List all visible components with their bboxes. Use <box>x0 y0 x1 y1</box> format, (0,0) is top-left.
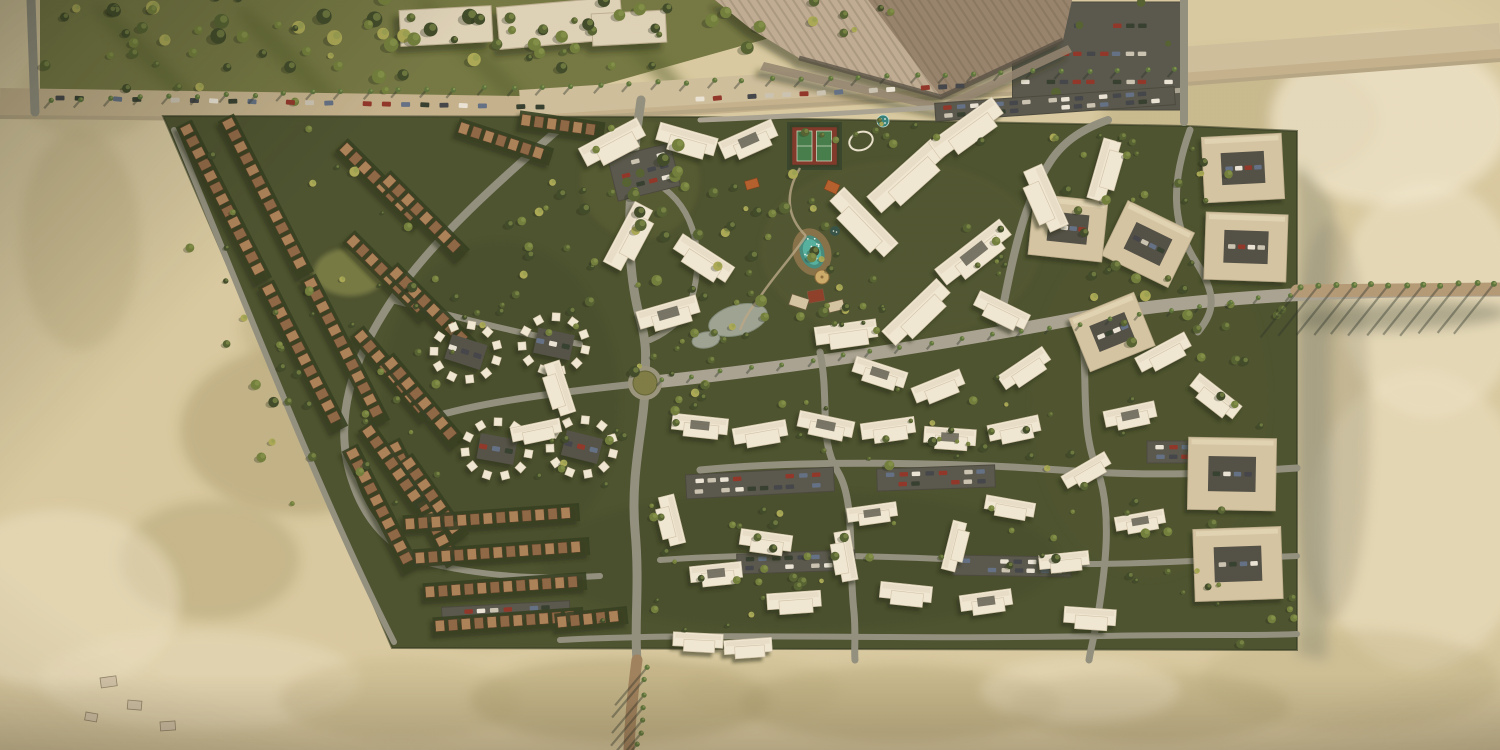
palm-highlight <box>658 80 660 82</box>
tree-highlight <box>996 260 998 262</box>
palm-highlight <box>781 363 783 365</box>
palm-highlight <box>992 332 994 334</box>
car <box>228 99 237 104</box>
tree-highlight <box>464 315 467 318</box>
car <box>812 483 821 488</box>
tree-highlight <box>654 24 659 29</box>
palm-highlight <box>1423 283 1426 286</box>
tree-highlight <box>595 147 599 151</box>
tree-highlight <box>413 34 420 41</box>
townhouse <box>477 582 487 594</box>
tree-highlight <box>281 364 285 368</box>
car <box>1156 455 1165 459</box>
tree-highlight <box>1115 261 1120 266</box>
tree-highlight <box>292 502 294 504</box>
tree-highlight <box>199 84 203 88</box>
tree-highlight <box>1122 432 1125 435</box>
car <box>925 471 934 476</box>
tree-highlight <box>436 472 439 475</box>
car <box>951 480 960 485</box>
tree-highlight <box>772 210 776 214</box>
car <box>695 489 704 494</box>
car <box>707 478 716 483</box>
tree-highlight <box>653 354 656 357</box>
tree-highlight <box>782 401 786 405</box>
palm-highlight <box>453 88 455 90</box>
palm-highlight <box>1354 283 1357 286</box>
tree-highlight <box>455 294 459 298</box>
tree-highlight <box>1240 640 1244 644</box>
tree-highlight <box>417 349 421 353</box>
car <box>760 486 769 491</box>
car <box>1048 98 1057 103</box>
car <box>1223 472 1231 477</box>
tree-highlight <box>713 189 718 194</box>
car <box>811 555 820 560</box>
shack <box>85 712 98 722</box>
car <box>1254 165 1262 170</box>
tree-highlight <box>880 6 883 9</box>
tree-highlight <box>799 433 802 436</box>
sand-patch <box>680 660 840 720</box>
tree-highlight <box>1228 171 1232 175</box>
shack <box>127 700 142 710</box>
tree-highlight <box>275 310 278 313</box>
palm-highlight <box>1171 309 1173 311</box>
tree-highlight <box>821 579 823 581</box>
townhouse <box>493 547 503 559</box>
townhouse <box>529 579 539 591</box>
tree-highlight <box>941 555 944 558</box>
tree-highlight <box>879 118 881 120</box>
tree-highlight <box>308 126 311 129</box>
car <box>459 103 468 108</box>
tree-highlight <box>671 372 674 375</box>
tree-highlight <box>575 324 578 327</box>
car <box>1235 166 1243 171</box>
tree-highlight <box>1144 529 1149 534</box>
roof-equipment <box>707 568 726 579</box>
block-wing <box>735 645 766 659</box>
car <box>324 100 333 105</box>
street <box>31 0 35 112</box>
tree-highlight <box>521 218 525 222</box>
tree-highlight <box>1092 272 1097 277</box>
tree-highlight <box>862 303 865 306</box>
palm-highlight <box>629 82 631 84</box>
tree-highlight <box>863 321 865 323</box>
tree-highlight <box>478 15 484 21</box>
tree-highlight <box>109 52 113 56</box>
tree-highlight <box>583 188 586 191</box>
tree-highlight <box>694 329 698 333</box>
tree-highlight <box>732 522 735 525</box>
tree-highlight <box>897 388 899 390</box>
tree-highlight <box>977 263 980 266</box>
tree-highlight <box>1135 579 1138 582</box>
townhouse <box>519 545 529 557</box>
car <box>977 479 986 484</box>
tree-highlight <box>661 207 666 212</box>
fountain-jet <box>884 118 886 120</box>
tree-highlight <box>523 271 527 275</box>
tree-highlight <box>750 291 753 294</box>
tree-highlight <box>353 168 358 173</box>
tree-highlight <box>533 39 540 46</box>
tree-highlight <box>1127 511 1130 514</box>
car <box>1257 245 1265 250</box>
tree-highlight <box>111 6 116 11</box>
car <box>478 104 487 109</box>
tree-highlight <box>957 440 959 442</box>
car <box>1021 80 1030 84</box>
tree-highlight <box>745 333 748 336</box>
tree-highlight <box>968 442 970 444</box>
tree-highlight <box>762 507 766 511</box>
tree-highlight <box>1050 412 1052 414</box>
tree-highlight <box>255 381 260 386</box>
tree-highlight <box>1167 569 1170 572</box>
car <box>1009 100 1018 105</box>
townhouse <box>570 614 580 626</box>
tree-highlight <box>801 578 806 583</box>
townhouse <box>609 610 619 622</box>
car <box>957 112 966 117</box>
tree-highlight <box>1000 226 1003 229</box>
tree-highlight <box>800 313 804 317</box>
townhouse <box>532 544 542 556</box>
tree-highlight <box>885 436 889 440</box>
tree-highlight <box>336 165 339 168</box>
tree-highlight <box>843 11 847 15</box>
tree-highlight <box>633 190 639 196</box>
tree-highlight <box>845 304 849 308</box>
canopy-dot <box>833 230 835 232</box>
tree-highlight <box>337 62 342 67</box>
tree-highlight <box>836 252 839 255</box>
tree-highlight <box>1144 192 1148 196</box>
car <box>1010 108 1019 113</box>
car <box>1244 165 1252 170</box>
tree-highlight <box>792 574 796 578</box>
car <box>1155 445 1164 449</box>
tree-highlight <box>279 342 282 345</box>
car <box>964 470 973 475</box>
tree-highlight <box>538 474 541 477</box>
palm-highlight <box>484 85 486 87</box>
townhouse <box>487 616 497 628</box>
tree-highlight <box>784 203 790 209</box>
car <box>944 113 953 118</box>
tree-highlight <box>991 429 995 433</box>
tree-highlight <box>869 457 871 459</box>
car <box>747 486 756 491</box>
tree-highlight <box>1196 325 1200 329</box>
car <box>1087 103 1096 108</box>
car <box>1126 80 1135 84</box>
tree-highlight <box>697 230 702 235</box>
parking-tree <box>1075 21 1083 29</box>
tree-highlight <box>723 337 726 340</box>
car <box>1022 100 1031 105</box>
tree-highlight <box>589 298 594 303</box>
palm-highlight <box>340 89 342 91</box>
tree-highlight <box>1183 591 1185 593</box>
tree-highlight <box>322 10 330 18</box>
tree-highlight <box>1144 291 1149 296</box>
tree-highlight <box>378 71 385 78</box>
tree-highlight <box>999 255 1003 259</box>
tree-highlight <box>561 32 567 38</box>
tree-highlight <box>1055 555 1060 560</box>
tree-highlight <box>757 534 761 538</box>
tree-highlight <box>664 232 670 238</box>
tree-highlight <box>666 4 671 9</box>
tree-highlight <box>277 22 281 26</box>
tree-highlight <box>792 170 797 175</box>
tree-highlight <box>611 190 615 194</box>
car <box>939 471 948 476</box>
tree-highlight <box>563 49 567 53</box>
tree-highlight <box>876 328 880 332</box>
tree-highlight <box>825 407 827 409</box>
car <box>1213 471 1221 476</box>
tree-highlight <box>308 287 312 291</box>
tree-highlight <box>528 243 532 247</box>
street <box>1297 289 1500 291</box>
palm-highlight <box>1258 296 1260 298</box>
palm-tree <box>1256 295 1261 300</box>
palm-highlight <box>197 95 199 97</box>
tennis-courts <box>787 122 842 170</box>
pool-lounger <box>807 238 809 240</box>
tree-highlight <box>164 36 170 42</box>
tree-highlight <box>385 87 389 91</box>
tree-highlight <box>1006 403 1008 405</box>
tree-highlight <box>560 190 565 195</box>
car <box>758 556 767 561</box>
tree-highlight <box>311 453 316 458</box>
car <box>516 104 525 109</box>
car <box>912 472 921 477</box>
tree-highlight <box>126 85 130 89</box>
tree-highlight <box>618 10 624 16</box>
tree-highlight <box>910 419 912 421</box>
palm-highlight <box>751 366 753 368</box>
tree-highlight <box>333 32 341 40</box>
fountain-jet <box>884 122 886 124</box>
tree-highlight <box>1105 196 1110 201</box>
car <box>765 93 774 98</box>
tree-highlight <box>834 553 838 557</box>
tree-highlight <box>914 123 917 126</box>
car <box>782 92 791 97</box>
tree-highlight <box>75 5 79 9</box>
tree-highlight <box>1072 510 1074 512</box>
tree-highlight <box>271 439 275 443</box>
car <box>784 556 793 561</box>
tree-highlight <box>502 303 505 306</box>
tree-highlight <box>764 313 768 317</box>
sand-patch <box>20 130 140 350</box>
car <box>886 87 895 92</box>
townhouse <box>516 580 526 592</box>
tree-highlight <box>509 14 514 19</box>
tree-highlight <box>611 125 614 128</box>
tree-highlight <box>1070 450 1074 454</box>
townhouse <box>418 517 428 529</box>
palm-highlight <box>398 88 400 90</box>
car <box>745 566 754 571</box>
tree-highlight <box>608 437 612 441</box>
tree-highlight <box>957 455 959 457</box>
tree-highlight <box>995 238 999 242</box>
block-wing <box>683 639 715 653</box>
tree-highlight <box>1207 584 1210 587</box>
tree-highlight <box>1030 453 1034 457</box>
car <box>535 105 544 110</box>
tree-highlight <box>482 323 485 326</box>
palm-highlight <box>1174 67 1176 69</box>
tree-highlight <box>717 262 722 267</box>
townhouse <box>548 508 558 520</box>
tree-highlight <box>674 407 679 412</box>
palm-highlight <box>661 378 663 380</box>
tree-highlight <box>551 439 553 441</box>
tree-highlight <box>1077 207 1081 211</box>
palm-highlight <box>1139 312 1141 314</box>
car <box>530 606 539 611</box>
tree-highlight <box>44 61 49 66</box>
palm-highlight <box>255 94 257 96</box>
car <box>1075 96 1084 101</box>
tree-highlight <box>807 553 811 557</box>
tree-highlight <box>217 30 225 38</box>
tree-highlight <box>587 19 593 25</box>
tree-highlight <box>745 207 748 210</box>
car <box>817 90 826 96</box>
palm-highlight <box>642 718 644 720</box>
palm-highlight <box>80 98 82 100</box>
tree-highlight <box>739 524 742 527</box>
palm-highlight <box>514 86 516 88</box>
tree-highlight <box>156 62 159 65</box>
tree-highlight <box>678 397 682 401</box>
palm-tree <box>841 353 846 358</box>
tree-highlight <box>674 560 676 562</box>
palm-highlight <box>601 83 603 85</box>
villa <box>465 375 474 384</box>
tree-highlight <box>939 437 941 439</box>
palm-highlight <box>1336 283 1339 286</box>
townhouse <box>555 577 565 589</box>
car <box>747 94 756 99</box>
car <box>504 607 513 612</box>
townhouse <box>425 586 435 598</box>
villa <box>461 448 470 457</box>
tree-highlight <box>966 224 970 228</box>
tree-highlight <box>700 576 703 579</box>
palm-highlight <box>973 72 975 74</box>
palm-highlight <box>641 731 643 733</box>
palm-highlight <box>843 353 845 355</box>
tree-highlight <box>548 330 552 334</box>
townhouse <box>557 616 567 628</box>
car <box>834 89 843 95</box>
parking-lot <box>877 465 996 491</box>
tree-highlight <box>1123 320 1126 323</box>
tree-highlight <box>365 419 368 422</box>
car <box>55 96 64 101</box>
palm-highlight <box>1090 69 1092 71</box>
tree-highlight <box>133 39 138 44</box>
tree-highlight <box>1126 152 1130 156</box>
tree-highlight <box>843 534 848 539</box>
tree-highlight <box>733 184 737 188</box>
tree-highlight <box>811 254 816 259</box>
tree-highlight <box>411 283 416 288</box>
car <box>382 102 391 107</box>
townhouse <box>559 120 569 132</box>
car <box>490 608 499 613</box>
tree-highlight <box>821 257 824 260</box>
car <box>1013 559 1022 564</box>
tree-highlight <box>211 152 215 156</box>
tree-highlight <box>473 54 480 61</box>
tree-highlight <box>727 623 730 626</box>
car <box>786 484 795 489</box>
tree-highlight <box>890 9 894 13</box>
tree-highlight <box>273 398 278 403</box>
tree-highlight <box>529 251 534 256</box>
tree-highlight <box>752 252 757 257</box>
car <box>812 472 821 477</box>
tree-highlight <box>177 84 181 88</box>
tree-highlight <box>402 70 408 76</box>
tree-highlight <box>1047 466 1050 469</box>
car <box>1138 80 1147 84</box>
palm-highlight <box>570 84 572 86</box>
tree-highlight <box>411 430 413 432</box>
palm-highlight <box>1440 284 1443 287</box>
townhouse <box>568 576 578 588</box>
tree-highlight <box>552 180 555 183</box>
car <box>1069 226 1077 231</box>
tree-highlight <box>611 62 615 66</box>
townhouse <box>480 548 490 560</box>
car <box>1248 245 1256 250</box>
tree-highlight <box>950 428 953 431</box>
tree-highlight <box>704 382 708 386</box>
car <box>713 95 722 101</box>
townhouse <box>431 516 441 528</box>
tree-highlight <box>1009 563 1013 567</box>
tree-highlight <box>226 64 230 68</box>
palm-highlight <box>637 742 639 744</box>
tree-highlight <box>1129 573 1133 577</box>
tree-highlight <box>763 566 767 570</box>
villa <box>552 313 561 322</box>
townhouse <box>474 617 484 629</box>
tree-highlight <box>662 155 668 161</box>
car <box>733 476 742 481</box>
pool-lounger <box>814 238 816 240</box>
palm-highlight <box>370 89 372 91</box>
canopy-dot <box>836 231 838 233</box>
palm-highlight <box>1110 317 1112 319</box>
tree-highlight <box>881 122 883 124</box>
tree-highlight <box>873 276 877 280</box>
